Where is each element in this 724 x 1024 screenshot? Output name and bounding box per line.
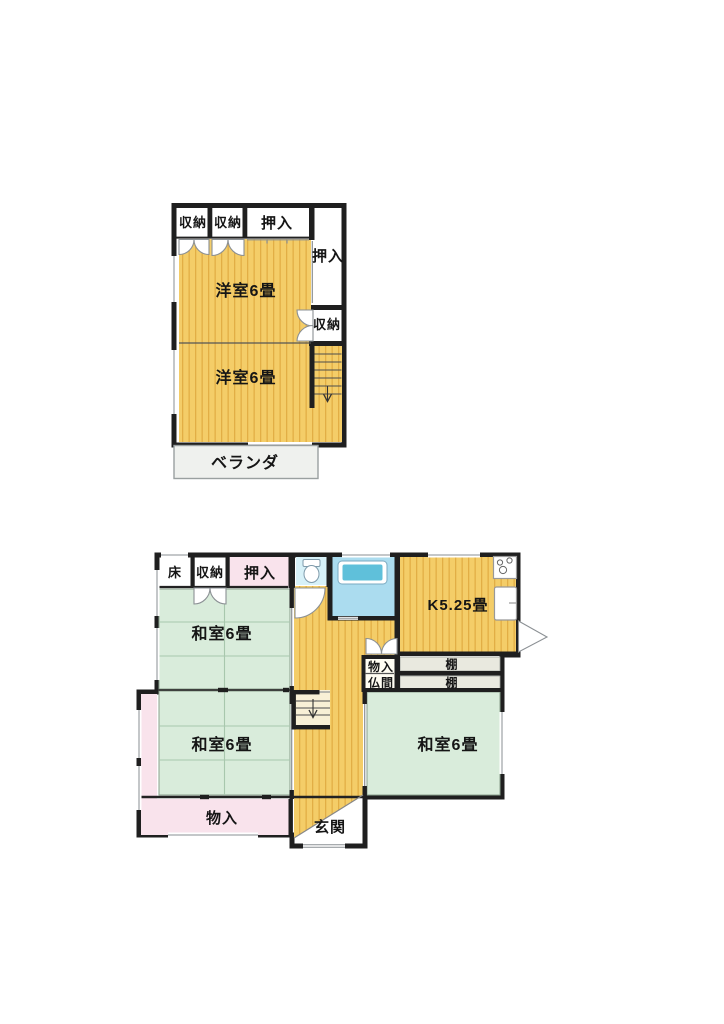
f1-kitchen-label: K5.25畳	[427, 597, 488, 614]
f1-stairs	[292, 690, 331, 730]
f2-closet-a-label: 収納	[179, 215, 207, 230]
floor1-plan: 床 収納 押入 K5.25畳 物入 仏間 棚 棚 和室6畳 和室6畳 和室6畳 …	[137, 553, 548, 849]
f1-tokonoma-label: 床	[168, 565, 182, 580]
f2-veranda-label: ベランダ	[211, 453, 279, 472]
f1-washitsu-e-label: 和室6畳	[418, 735, 479, 754]
f1-washitsu-nw-label: 和室6畳	[192, 624, 253, 643]
f1-bathtub-icon	[338, 561, 387, 584]
f2-western-room-lower-label: 洋室6畳	[216, 368, 277, 387]
f1-stove-icon	[494, 557, 517, 579]
f1-storage-small-label: 物入	[368, 659, 394, 674]
f1-oshiire-label: 押入	[244, 564, 276, 582]
f1-shelf-bottom-label: 棚	[445, 675, 458, 690]
f1-kitchen-exterior-door	[519, 621, 548, 652]
floor-plan-page: 収納 収納 押入 押入 収納 洋室6畳 洋室6畳 ベランダ	[0, 0, 724, 1024]
f1-shelf-top-label: 棚	[445, 657, 458, 672]
f1-entrance-label: 玄関	[314, 818, 346, 836]
f1-butsuma-label: 仏間	[368, 676, 394, 690]
f1-closet-label: 収納	[196, 565, 224, 580]
f1-storage-bottom-label: 物入	[206, 809, 238, 827]
f2-oshiire-right-label: 押入	[312, 247, 344, 265]
f1-sink-icon	[495, 587, 517, 620]
f2-oshiire-top-label: 押入	[261, 214, 293, 232]
f1-washitsu-sw-label: 和室6畳	[192, 735, 253, 754]
f2-closet-right-label: 収納	[313, 317, 341, 332]
floor-plan-drawing: 収納 収納 押入 押入 収納 洋室6畳 洋室6畳 ベランダ	[0, 0, 724, 1024]
f2-western-room-upper-label: 洋室6畳	[216, 281, 277, 300]
f2-closet-b-label: 収納	[214, 215, 242, 230]
f1-toilet-icon	[303, 560, 320, 583]
floor2-plan: 収納 収納 押入 押入 収納 洋室6畳 洋室6畳 ベランダ	[172, 205, 345, 479]
